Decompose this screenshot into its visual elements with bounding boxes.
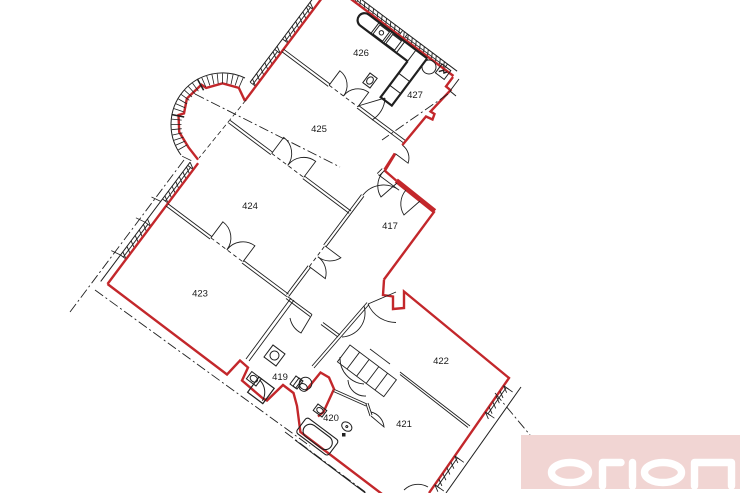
svg-text:424: 424 [242,201,258,212]
svg-text:423: 423 [192,289,208,300]
svg-text:419: 419 [272,372,288,383]
svg-text:420: 420 [323,413,339,424]
svg-text:426: 426 [353,48,369,59]
svg-text:427: 427 [407,90,423,101]
svg-text:417: 417 [382,221,398,232]
svg-text:422: 422 [433,356,449,367]
svg-text:425: 425 [311,124,327,135]
svg-text:421: 421 [396,419,412,430]
